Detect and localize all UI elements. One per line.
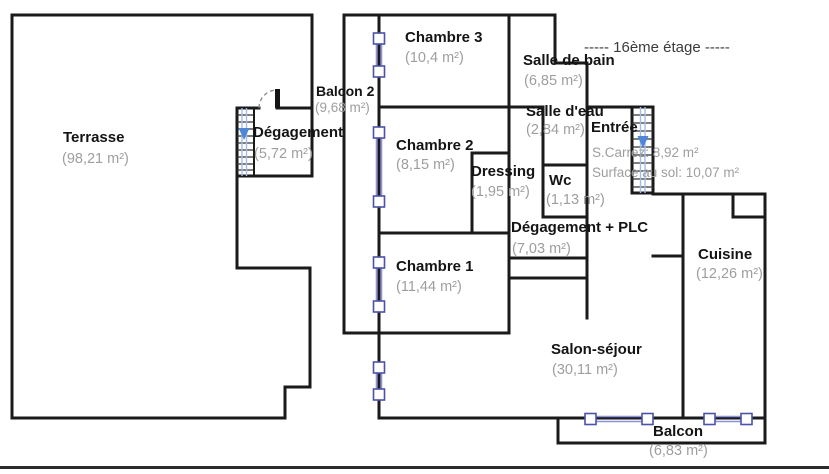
stairs-down-icon (237, 108, 254, 176)
room-area-dressing: (1,95 m²) (471, 185, 530, 200)
room-label-wc: Wc (549, 173, 572, 188)
room-area-salledebain: (6,85 m²) (524, 74, 583, 89)
room-area-salon: (30,11 m²) (552, 363, 618, 378)
room-label-salledebain: Salle de bain (523, 53, 615, 68)
room-label-balcon2: Balcon 2 (316, 84, 374, 98)
room-label-degagement: Dégagement (253, 125, 343, 140)
room-area-terrasse: (98,21 m²) (62, 152, 129, 167)
room-label-salon: Salon-séjour (551, 342, 642, 357)
room-area-balcon2: (9,68 m²) (315, 101, 370, 115)
room-area-wc: (1,13 m²) (546, 193, 605, 208)
room-label-terrasse: Terrasse (63, 130, 124, 145)
room-label-chambre3: Chambre 3 (405, 30, 483, 45)
room-area-chambre1: (11,44 m²) (396, 280, 462, 295)
room-label-dressing: Dressing (471, 164, 535, 179)
room-carrez-entree: S.Carrez: 8,92 m² (592, 146, 699, 160)
room-area-chambre3: (10,4 m²) (405, 51, 464, 66)
room-label-cuisine: Cuisine (698, 247, 752, 262)
floor-plan: ----- 16ème étage ----- Terrasse (98,21 … (0, 0, 829, 474)
room-area-degagement: (5,72 m²) (254, 147, 313, 162)
door-swing-icon (259, 89, 278, 108)
room-area-chambre2: (8,15 m²) (396, 158, 455, 173)
room-label-salledeau: Salle d'eau (526, 104, 604, 119)
room-label-chambre2: Chambre 2 (396, 138, 474, 153)
floorplan-drawing (0, 0, 829, 474)
room-label-chambre1: Chambre 1 (396, 259, 474, 274)
room-surface-entree: Surface au sol: 10,07 m² (592, 166, 739, 180)
room-label-entree: Entrée (591, 120, 638, 135)
room-area-cuisine: (12,26 m²) (696, 267, 763, 282)
room-label-balcon: Balcon (653, 424, 703, 439)
terrasse-walls (12, 15, 312, 418)
room-area-degplc: (7,03 m²) (512, 242, 571, 257)
room-label-degplc: Dégagement + PLC (511, 220, 648, 235)
room-area-balcon: (6,83 m²) (649, 444, 708, 459)
room-area-salledeau: (2,84 m²) (526, 123, 585, 138)
